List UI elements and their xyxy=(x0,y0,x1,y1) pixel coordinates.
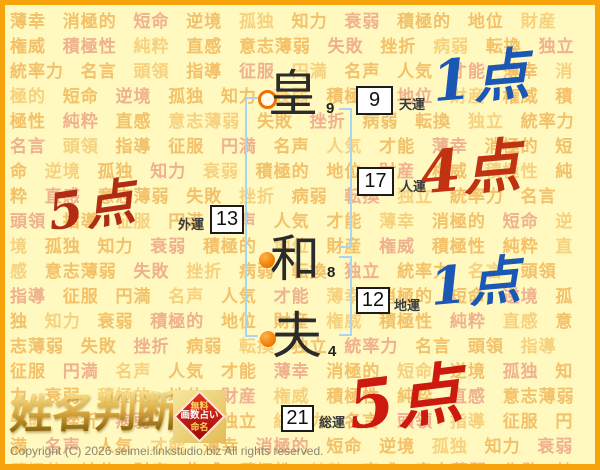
bracket-outer-vertical xyxy=(245,97,247,337)
souun-score-calligraphy: 5点 xyxy=(344,359,467,439)
bracket-person-vertical xyxy=(350,108,352,248)
diagram-layer: 皇 9 和 8 夫 4 9 天運 1点 17 人運 4点 外運 13 5点 xyxy=(0,0,600,470)
page-border-left xyxy=(0,0,5,470)
page-border-top xyxy=(0,0,600,5)
stroke-count-surname: 9 xyxy=(326,100,334,117)
souun-label: 総運 xyxy=(319,412,345,431)
seimei-handan-page: 薄幸 消極的 短命 逆境 孤独 知力 衰弱 積極的 地位 財産 権威 積極性 純… xyxy=(0,0,600,470)
badge-text: 無料 画数占い 命名 xyxy=(180,401,218,433)
souun-value: 21 xyxy=(286,407,308,430)
chiun-score-calligraphy: 1点 xyxy=(428,254,524,314)
copyright-text: Copyright (C) 2026 seimei.linkstudio.biz… xyxy=(10,444,323,458)
jinun-value: 17 xyxy=(364,170,386,193)
souun-value-box: 21 xyxy=(281,405,314,432)
chiun-value: 12 xyxy=(362,289,384,312)
tenun-label: 天運 xyxy=(399,94,425,113)
name-char-surname: 皇 xyxy=(268,68,318,120)
chiun-value-box: 12 xyxy=(356,287,390,314)
badge-line-3: 命名 xyxy=(180,422,218,432)
gaiun-value: 13 xyxy=(216,208,238,231)
page-border-right xyxy=(595,0,600,470)
bracket-person-tick-bottom xyxy=(339,246,352,248)
jinun-value-box: 17 xyxy=(357,167,394,196)
site-logo[interactable]: 姓名判断 xyxy=(8,391,179,437)
name-char-given-1: 和 xyxy=(270,233,320,285)
name-char-given-2: 夫 xyxy=(272,310,322,362)
bracket-person-tick-top xyxy=(339,108,352,110)
bracket-earth-tick-top xyxy=(339,256,352,258)
page-border-bottom xyxy=(0,464,600,470)
free-kakusu-badge[interactable]: 無料 画数占い 命名 xyxy=(173,390,226,443)
bracket-earth-vertical xyxy=(350,256,352,336)
gaiun-score-calligraphy: 5点 xyxy=(45,176,140,238)
tenun-score-calligraphy: 1点 xyxy=(430,46,533,110)
bracket-outer-tick-top xyxy=(245,97,258,99)
badge-line-2: 画数占い xyxy=(180,411,218,422)
gaiun-label: 外運 xyxy=(178,214,204,233)
jinun-score-calligraphy: 4点 xyxy=(418,136,525,203)
bracket-outer-tick-bottom xyxy=(245,335,258,337)
stroke-count-given-1: 8 xyxy=(327,264,335,281)
chiun-label: 地運 xyxy=(394,295,420,314)
tenun-value-box: 9 xyxy=(356,86,393,115)
bracket-earth-tick-bottom xyxy=(339,334,352,336)
stroke-count-given-2: 4 xyxy=(328,343,336,360)
gaiun-value-box: 13 xyxy=(210,205,244,234)
tenun-value: 9 xyxy=(369,89,380,112)
